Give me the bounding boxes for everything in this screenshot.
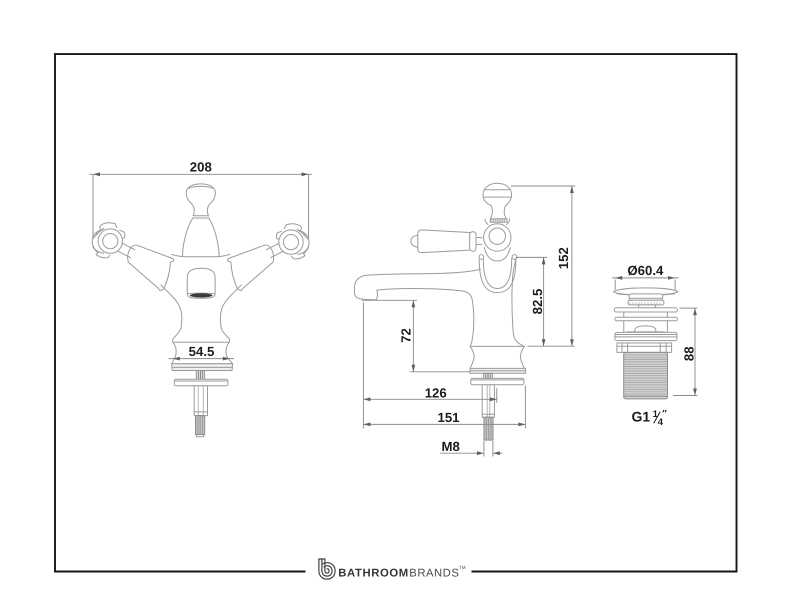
svg-text:88: 88: [681, 346, 696, 361]
svg-text:151: 151: [437, 410, 459, 425]
svg-text:152: 152: [556, 247, 571, 269]
svg-text:M8: M8: [442, 439, 460, 454]
svg-text:Ø60.4: Ø60.4: [627, 263, 664, 278]
svg-text:BATHROOM: BATHROOM: [338, 567, 408, 579]
svg-text:TM: TM: [459, 565, 466, 570]
svg-text:″: ″: [662, 409, 667, 420]
svg-text:208: 208: [190, 159, 212, 174]
svg-text:126: 126: [425, 385, 447, 400]
svg-text:BRANDS: BRANDS: [409, 567, 459, 579]
svg-text:G1: G1: [632, 409, 651, 425]
svg-text:54.5: 54.5: [189, 344, 215, 359]
svg-text:72: 72: [398, 328, 413, 343]
svg-text:82.5: 82.5: [530, 289, 545, 315]
